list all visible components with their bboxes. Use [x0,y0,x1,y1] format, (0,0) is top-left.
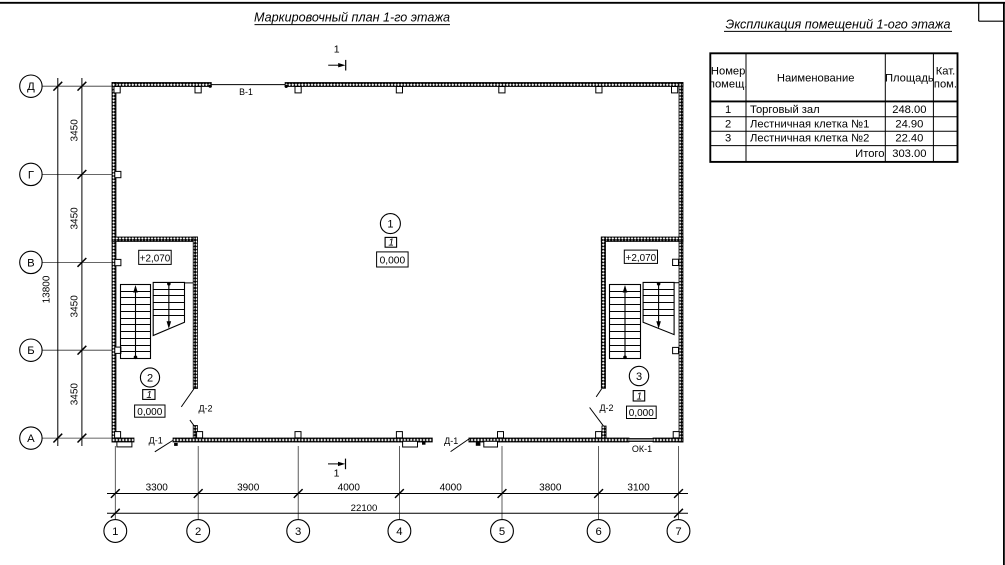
svg-text:1: 1 [334,44,340,56]
svg-text:4000: 4000 [338,482,361,493]
svg-text:7: 7 [675,526,681,538]
svg-text:3450: 3450 [70,119,81,142]
svg-text:Маркировочный план 1-го этажа: Маркировочный план 1-го этажа [254,11,450,25]
svg-text:Итого: Итого [855,148,884,160]
svg-text:Экспликация помещений 1-ого эт: Экспликация помещений 1-ого этажа [726,17,951,31]
svg-text:пом.: пом. [934,79,957,91]
svg-text:Наименование: Наименование [777,72,855,84]
svg-text:1: 1 [146,390,152,401]
svg-text:1: 1 [112,526,118,538]
svg-text:303.00: 303.00 [892,148,926,160]
svg-text:13800: 13800 [42,275,53,303]
svg-text:В-1: В-1 [239,87,253,97]
svg-text:Номер: Номер [711,66,745,78]
svg-text:22100: 22100 [351,503,378,514]
svg-text:4: 4 [396,526,402,538]
svg-text:Торговый зал: Торговый зал [750,104,820,116]
svg-text:3: 3 [295,526,301,538]
svg-text:Г: Г [28,169,34,181]
svg-text:Д-2: Д-2 [198,403,212,413]
svg-text:ОК-1: ОК-1 [632,444,652,454]
svg-text:5: 5 [499,526,505,538]
svg-text:2: 2 [147,373,153,385]
svg-text:Лестничная клетка №1: Лестничная клетка №1 [750,118,869,130]
svg-text:Д: Д [27,81,35,93]
svg-text:+2,070: +2,070 [140,254,171,265]
svg-text:Кат.: Кат. [936,66,955,78]
svg-text:3800: 3800 [539,482,562,493]
svg-text:Площадь: Площадь [885,72,934,84]
svg-text:3450: 3450 [70,207,81,230]
svg-text:Д-1: Д-1 [444,436,458,446]
svg-text:3300: 3300 [146,482,169,493]
svg-text:24.90: 24.90 [895,118,923,130]
svg-text:6: 6 [595,526,601,538]
svg-text:3450: 3450 [70,295,81,318]
svg-text:+2,070: +2,070 [626,253,657,264]
svg-text:1: 1 [637,391,643,402]
svg-text:А: А [27,433,35,445]
svg-text:248.00: 248.00 [892,104,926,116]
svg-text:Д-1: Д-1 [149,435,163,445]
svg-text:0,000: 0,000 [137,407,162,418]
svg-text:В: В [27,257,35,269]
svg-text:22.40: 22.40 [895,133,923,145]
svg-text:0,000: 0,000 [380,256,406,267]
svg-text:4000: 4000 [440,482,463,493]
svg-text:3: 3 [636,371,642,383]
svg-text:Лестничная клетка №2: Лестничная клетка №2 [750,133,869,145]
svg-text:Б: Б [27,345,34,357]
svg-text:2: 2 [725,118,731,130]
svg-text:2: 2 [195,526,201,538]
svg-text:1: 1 [387,219,393,231]
svg-text:0,000: 0,000 [629,408,654,419]
svg-text:Д-2: Д-2 [599,403,613,413]
svg-text:3: 3 [725,133,731,145]
svg-text:3900: 3900 [237,482,260,493]
svg-text:3100: 3100 [627,482,650,493]
svg-text:помещ.: помещ. [709,79,748,91]
svg-text:1: 1 [334,467,340,479]
svg-text:1: 1 [725,104,731,116]
svg-text:3450: 3450 [70,383,81,406]
svg-text:1: 1 [388,238,394,249]
